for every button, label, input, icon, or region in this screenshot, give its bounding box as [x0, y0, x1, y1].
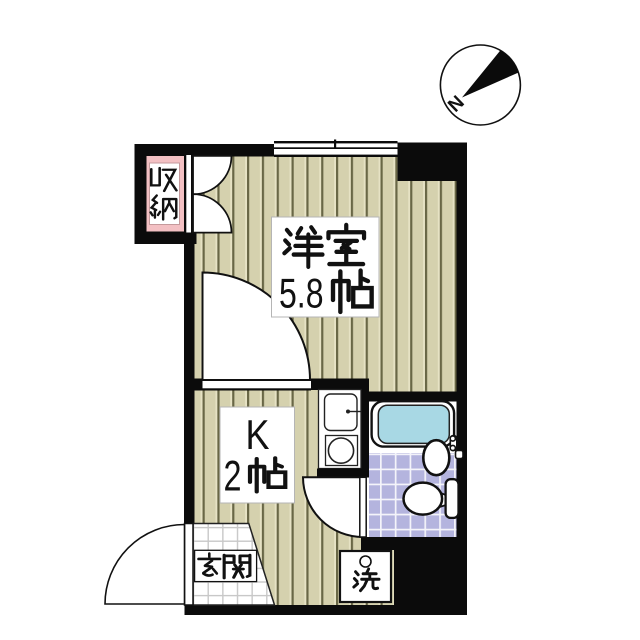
svg-text:2: 2 [224, 452, 242, 500]
svg-text:5.8: 5.8 [279, 270, 324, 317]
svg-text:K: K [246, 411, 270, 458]
